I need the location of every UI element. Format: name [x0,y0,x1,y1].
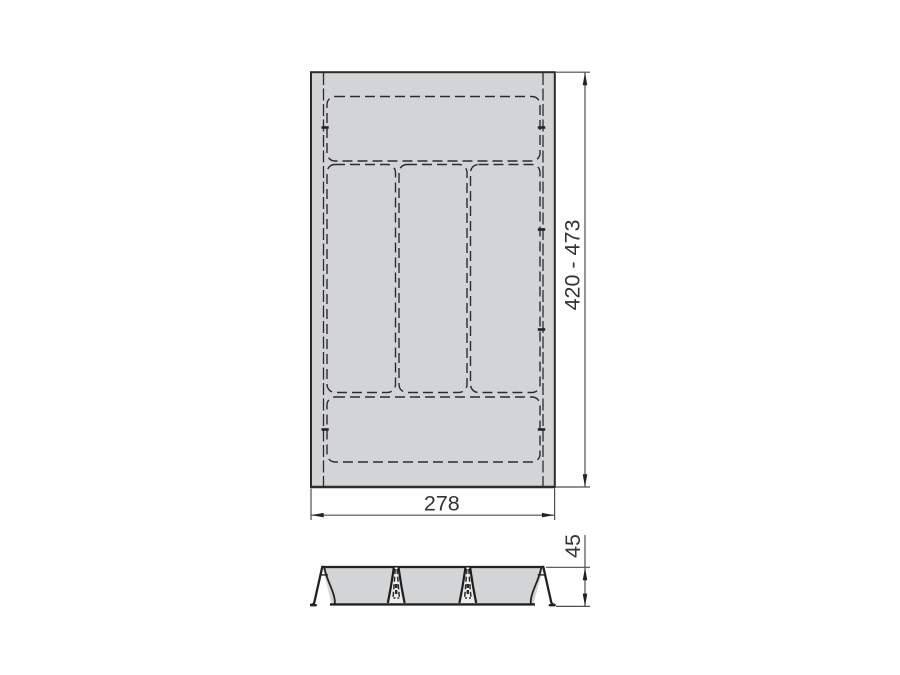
svg-text:420 - 473: 420 - 473 [561,220,585,311]
svg-text:45: 45 [561,534,585,558]
svg-text:278: 278 [424,492,460,516]
